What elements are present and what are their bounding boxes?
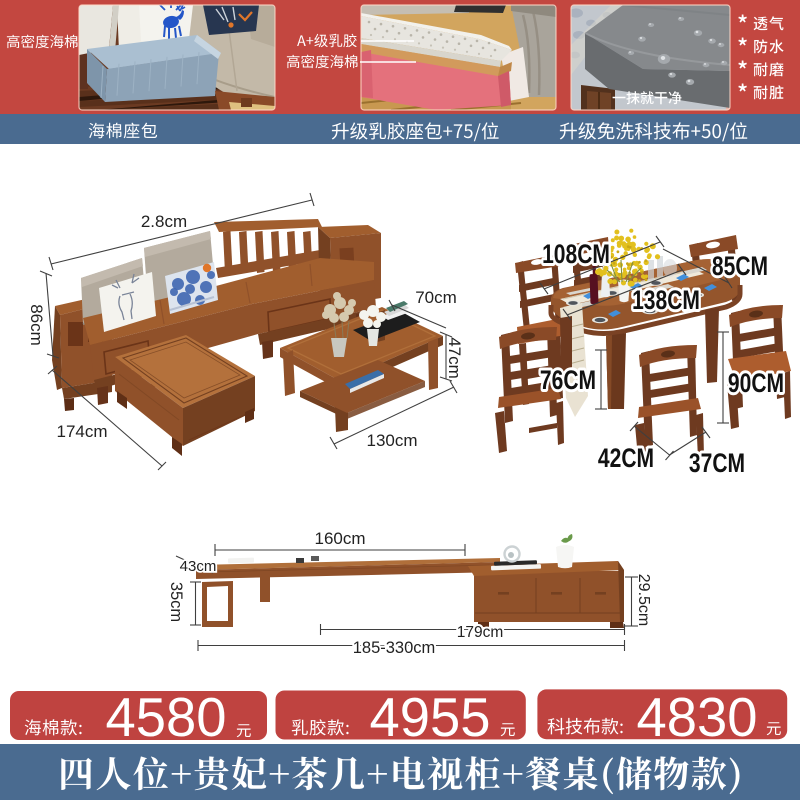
svg-text:29.5cm: 29.5cm (635, 574, 652, 626)
svg-text:179cm: 179cm (457, 624, 504, 641)
svg-text:160cm: 160cm (314, 529, 365, 548)
svg-text:37CM: 37CM (689, 449, 745, 479)
svg-text:4830: 4830 (637, 686, 758, 748)
svg-text:90CM: 90CM (728, 369, 784, 399)
svg-text:70cm: 70cm (415, 288, 457, 307)
svg-text:76CM: 76CM (540, 366, 596, 396)
svg-text:85CM: 85CM (712, 252, 768, 282)
svg-text:174cm: 174cm (56, 422, 107, 441)
svg-text:42CM: 42CM (598, 444, 654, 474)
svg-text:138CM: 138CM (632, 286, 700, 316)
svg-text:43cm: 43cm (180, 558, 217, 575)
svg-text:108CM: 108CM (542, 240, 610, 270)
svg-text:4955: 4955 (370, 686, 491, 748)
svg-text:130cm: 130cm (366, 431, 417, 450)
svg-text:2.8cm: 2.8cm (141, 212, 187, 231)
svg-text:86cm: 86cm (27, 304, 46, 346)
svg-text:4580: 4580 (106, 686, 227, 748)
svg-text:185-330cm: 185-330cm (353, 639, 436, 657)
svg-text:47cm: 47cm (445, 337, 464, 379)
svg-text:35cm: 35cm (167, 582, 185, 622)
